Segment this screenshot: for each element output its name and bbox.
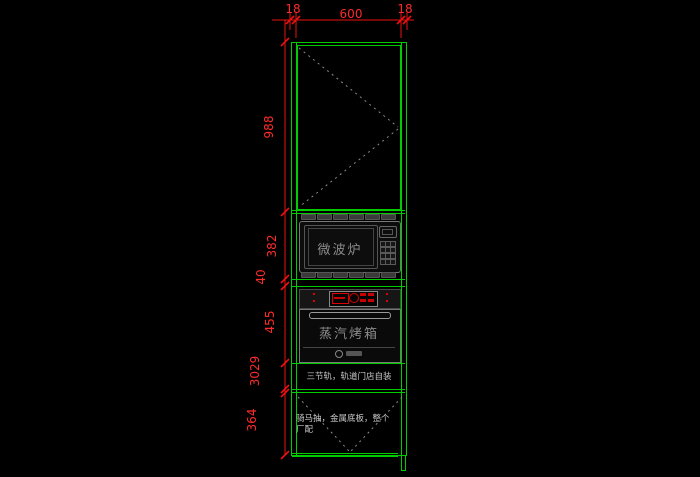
microwave-vent-bar [349, 272, 364, 278]
note-drawer-line2: 厂配 [296, 425, 402, 436]
microwave-vent-bar [317, 214, 332, 220]
oven-panel-dot [313, 293, 315, 295]
dim-top-right-18: 18 [395, 2, 415, 16]
note-drawer-line1: 骑马抽，金属底板，整个 [296, 414, 402, 425]
oven-knob [349, 293, 359, 303]
shelf-line-3 [292, 279, 405, 280]
steam-oven-label: 蒸汽烤箱 [299, 323, 399, 342]
oven-bottom-shelf-line [292, 363, 405, 364]
microwave-vent-bar [349, 214, 364, 220]
microwave-vent-bar [301, 272, 316, 278]
drawer-top-line-2 [292, 392, 405, 393]
dim-40: 40 [254, 265, 268, 289]
dim-988: 988 [262, 107, 276, 147]
oven-button-bar [368, 293, 374, 296]
right-panel-extension-inner [401, 455, 402, 471]
dim-382: 382 [265, 226, 279, 266]
oven-panel-dot [386, 300, 388, 302]
cad-drawing-canvas: 18 600 18 988 382 40 455 3029 364 微波炉 [0, 0, 700, 477]
oven-button-bar [368, 299, 374, 302]
microwave-label: 微波炉 [308, 239, 372, 258]
dim-455: 455 [263, 302, 277, 342]
oven-panel-dot [386, 293, 388, 295]
shelf-line-1 [292, 210, 405, 211]
microwave-vent-bar [365, 272, 380, 278]
oven-door-divider [303, 347, 395, 348]
microwave-vent-bar [381, 214, 396, 220]
oven-logo-circle [335, 350, 343, 358]
oven-button-bar [360, 299, 366, 302]
note-drawer: 骑马抽，金属底板，整个 厂配 [296, 414, 402, 436]
base-line-2 [292, 456, 398, 457]
oven-handle [309, 312, 391, 319]
microwave-display-screen [382, 229, 393, 235]
upper-door-panel-outline [297, 45, 401, 210]
microwave-vent-bar [333, 272, 348, 278]
oven-panel-dot [313, 300, 315, 302]
dim-3029: 3029 [248, 347, 262, 395]
right-panel-extension-cap [401, 470, 406, 471]
oven-button-bar [360, 293, 366, 296]
microwave-vent-bar [381, 272, 396, 278]
oven-logo-bar [346, 351, 362, 356]
right-panel-extension-outer [405, 455, 406, 471]
microwave-vent-bar [301, 214, 316, 220]
dim-364: 364 [245, 400, 259, 440]
microwave-vent-bar [333, 214, 348, 220]
drawer-top-line-1 [292, 389, 405, 390]
microwave-keypad-key [390, 259, 396, 265]
base-line-1 [292, 453, 398, 454]
microwave-vent-bar [317, 272, 332, 278]
oven-display-readout [334, 297, 345, 299]
note-rail: 三节轨，轨道门店自装 [299, 372, 399, 383]
shelf-line-4 [292, 286, 405, 287]
dim-top-left-18: 18 [283, 2, 303, 16]
microwave-vent-bar [365, 214, 380, 220]
dim-top-600: 600 [333, 7, 369, 21]
cabinet-right-inner-panel-line [401, 42, 402, 455]
